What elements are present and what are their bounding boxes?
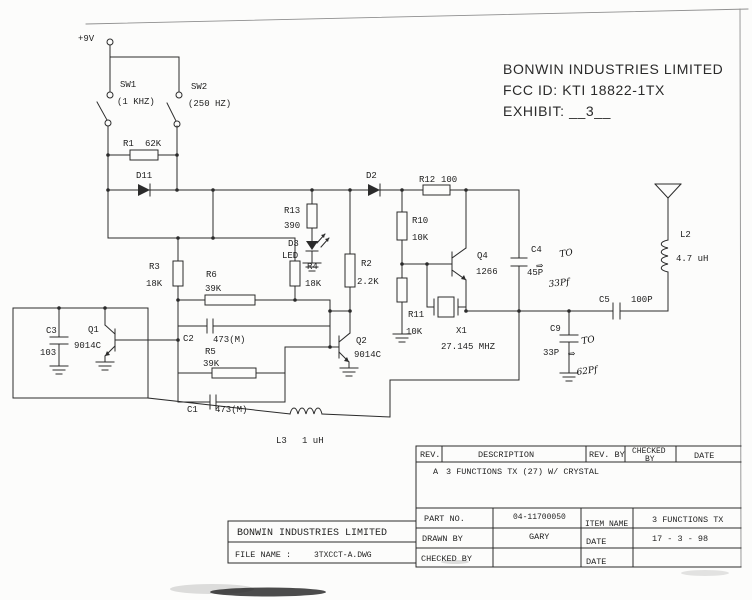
scanned-schematic-sheet: BONWIN INDUSTRIES LIMITED FCC ID: KTI 18… <box>0 0 752 600</box>
oscillator-box-outline <box>13 308 148 398</box>
file-name-value: 3TXCCT-A.DWG <box>314 551 372 560</box>
to-arrow-icon: ⇒ <box>567 349 576 360</box>
sw2-value: (250 HZ) <box>188 99 231 109</box>
r3-label: R3 <box>149 262 160 272</box>
to-arrow-icon: ⇒ <box>535 261 544 272</box>
switch-sw2-symbol <box>174 92 182 127</box>
x1-value: 27.145 MHZ <box>441 342 496 352</box>
d3-label: D3 <box>288 239 299 249</box>
l2-label: L2 <box>680 230 691 240</box>
diode-d2-symbol <box>368 184 380 196</box>
transistor-q1-symbol <box>105 325 115 356</box>
fcc-id-line: FCC ID: KTI 18822-1TX <box>503 82 665 98</box>
ground-icon <box>50 366 68 374</box>
r11-value: 10K <box>406 327 423 337</box>
capacitor-c2-symbol <box>207 319 213 333</box>
schematic-canvas: BONWIN INDUSTRIES LIMITED FCC ID: KTI 18… <box>0 0 752 600</box>
note2-to: TO <box>581 335 597 347</box>
transistor-q4-symbol <box>452 248 466 280</box>
handwritten-notes: ⇒ TO 33Pf TO ⇒ 62Pf <box>535 248 599 378</box>
ground-icon <box>96 362 114 370</box>
rev-by-col-header: REV. BY <box>589 450 625 460</box>
checked-by-col-header2: BY <box>645 455 655 464</box>
switch-sw1-symbol <box>105 92 113 126</box>
r3-value: 18K <box>146 279 163 289</box>
d3-value: LED <box>282 251 298 261</box>
note2-value: 62Pf <box>576 365 600 378</box>
c9-value: 33P <box>543 348 559 358</box>
rev-description: 3 FUNCTIONS TX (27) W/ CRYSTAL <box>446 467 599 477</box>
power-terminal <box>107 39 113 45</box>
l2-value: 4.7 uH <box>676 254 708 264</box>
ground-icon <box>340 368 358 376</box>
c3-label: C3 <box>46 326 57 336</box>
c2-label: C2 <box>183 334 194 344</box>
sw1-value: (1 KHZ) <box>117 97 155 107</box>
drawn-by-label: DRAWN BY <box>422 534 463 544</box>
date1-label: DATE <box>586 537 606 547</box>
c2-value: 473(M) <box>213 335 245 345</box>
exhibit-line: EXHIBIT: __3__ <box>503 103 611 119</box>
q2-value: 9014C <box>354 350 382 360</box>
item-name-label: ITEM NAME <box>585 520 628 529</box>
description-col-header: DESCRIPTION <box>478 450 534 460</box>
r1-label: R1 <box>123 139 134 149</box>
rev-letter: A <box>433 467 439 477</box>
d11-label: D11 <box>136 171 152 181</box>
r4-label: R4 <box>307 262 318 272</box>
l3-value: 1 uH <box>302 436 324 446</box>
r12-label: R12 <box>419 175 435 185</box>
q2-label: Q2 <box>356 336 367 346</box>
item-name-value: 3 FUNCTIONS TX <box>652 515 723 525</box>
crystal-x1-symbol <box>434 297 458 317</box>
r6-value: 39K <box>205 284 222 294</box>
capacitor-c3-symbol <box>50 337 68 344</box>
r5-value: 39K <box>203 359 220 369</box>
date-col-header: DATE <box>694 451 714 461</box>
r4-value: 18K <box>305 279 322 289</box>
capacitor-c5-symbol <box>613 303 620 319</box>
capacitor-c9-symbol <box>560 335 578 342</box>
c9-label: C9 <box>550 324 561 334</box>
part-no-value: 04-11700050 <box>513 513 566 522</box>
scan-artifacts <box>170 560 729 597</box>
d2-label: D2 <box>366 171 377 181</box>
diode-d11-symbol <box>138 184 150 196</box>
c4-label: C4 <box>531 245 542 255</box>
power-label: +9V <box>78 34 95 44</box>
file-name-label: FILE NAME : <box>235 550 291 560</box>
r1-value: 62K <box>145 139 162 149</box>
inductor-l3-symbol <box>290 408 322 414</box>
r13-value: 390 <box>284 221 300 231</box>
r10-label: R10 <box>412 216 428 226</box>
c3-value: 103 <box>40 348 56 358</box>
drawn-by-value: GARY <box>529 532 549 542</box>
date2-label: DATE <box>586 557 606 567</box>
transistor-q2-symbol <box>339 333 350 362</box>
antenna-icon <box>655 184 681 198</box>
r10-value: 10K <box>412 233 429 243</box>
wires <box>13 45 668 417</box>
company-title: BONWIN INDUSTRIES LIMITED <box>503 61 723 77</box>
note1-to: TO <box>559 248 574 260</box>
r12-value: 100 <box>441 175 457 185</box>
c1-label: C1 <box>187 405 198 415</box>
r6-label: R6 <box>206 270 217 280</box>
inductor-l2-symbol <box>661 240 668 272</box>
company-cell: BONWIN INDUSTRIES LIMITED <box>237 528 387 539</box>
sw1-label: SW1 <box>120 80 136 90</box>
q4-value: 1266 <box>476 267 498 277</box>
q4-label: Q4 <box>477 251 488 261</box>
r2-value: 2.2K <box>357 277 379 287</box>
rev-col-header: REV. <box>420 450 440 460</box>
x1-label: X1 <box>456 326 467 336</box>
capacitor-c4-symbol <box>511 258 527 266</box>
title-block: REV. DESCRIPTION REV. BY CHECKED BY DATE… <box>228 446 741 567</box>
l3-label: L3 <box>276 436 287 446</box>
r2-label: R2 <box>361 259 372 269</box>
c5-label: C5 <box>599 295 610 305</box>
led-d3-symbol <box>306 234 329 251</box>
r5-label: R5 <box>205 347 216 357</box>
note1-value: 33Pf <box>548 277 572 290</box>
ground-icon <box>560 373 578 381</box>
fcc-header: BONWIN INDUSTRIES LIMITED FCC ID: KTI 18… <box>503 61 723 119</box>
c5-value: 100P <box>631 295 653 305</box>
q1-value: 9014C <box>74 341 102 351</box>
q1-label: Q1 <box>88 325 99 335</box>
sw2-label: SW2 <box>191 82 207 92</box>
r11-label: R11 <box>408 310 424 320</box>
r13-label: R13 <box>284 206 300 216</box>
part-no-label: PART NO. <box>424 514 465 524</box>
date1-value: 17 - 3 - 98 <box>652 534 708 544</box>
c1-value: 473(M) <box>215 405 247 415</box>
